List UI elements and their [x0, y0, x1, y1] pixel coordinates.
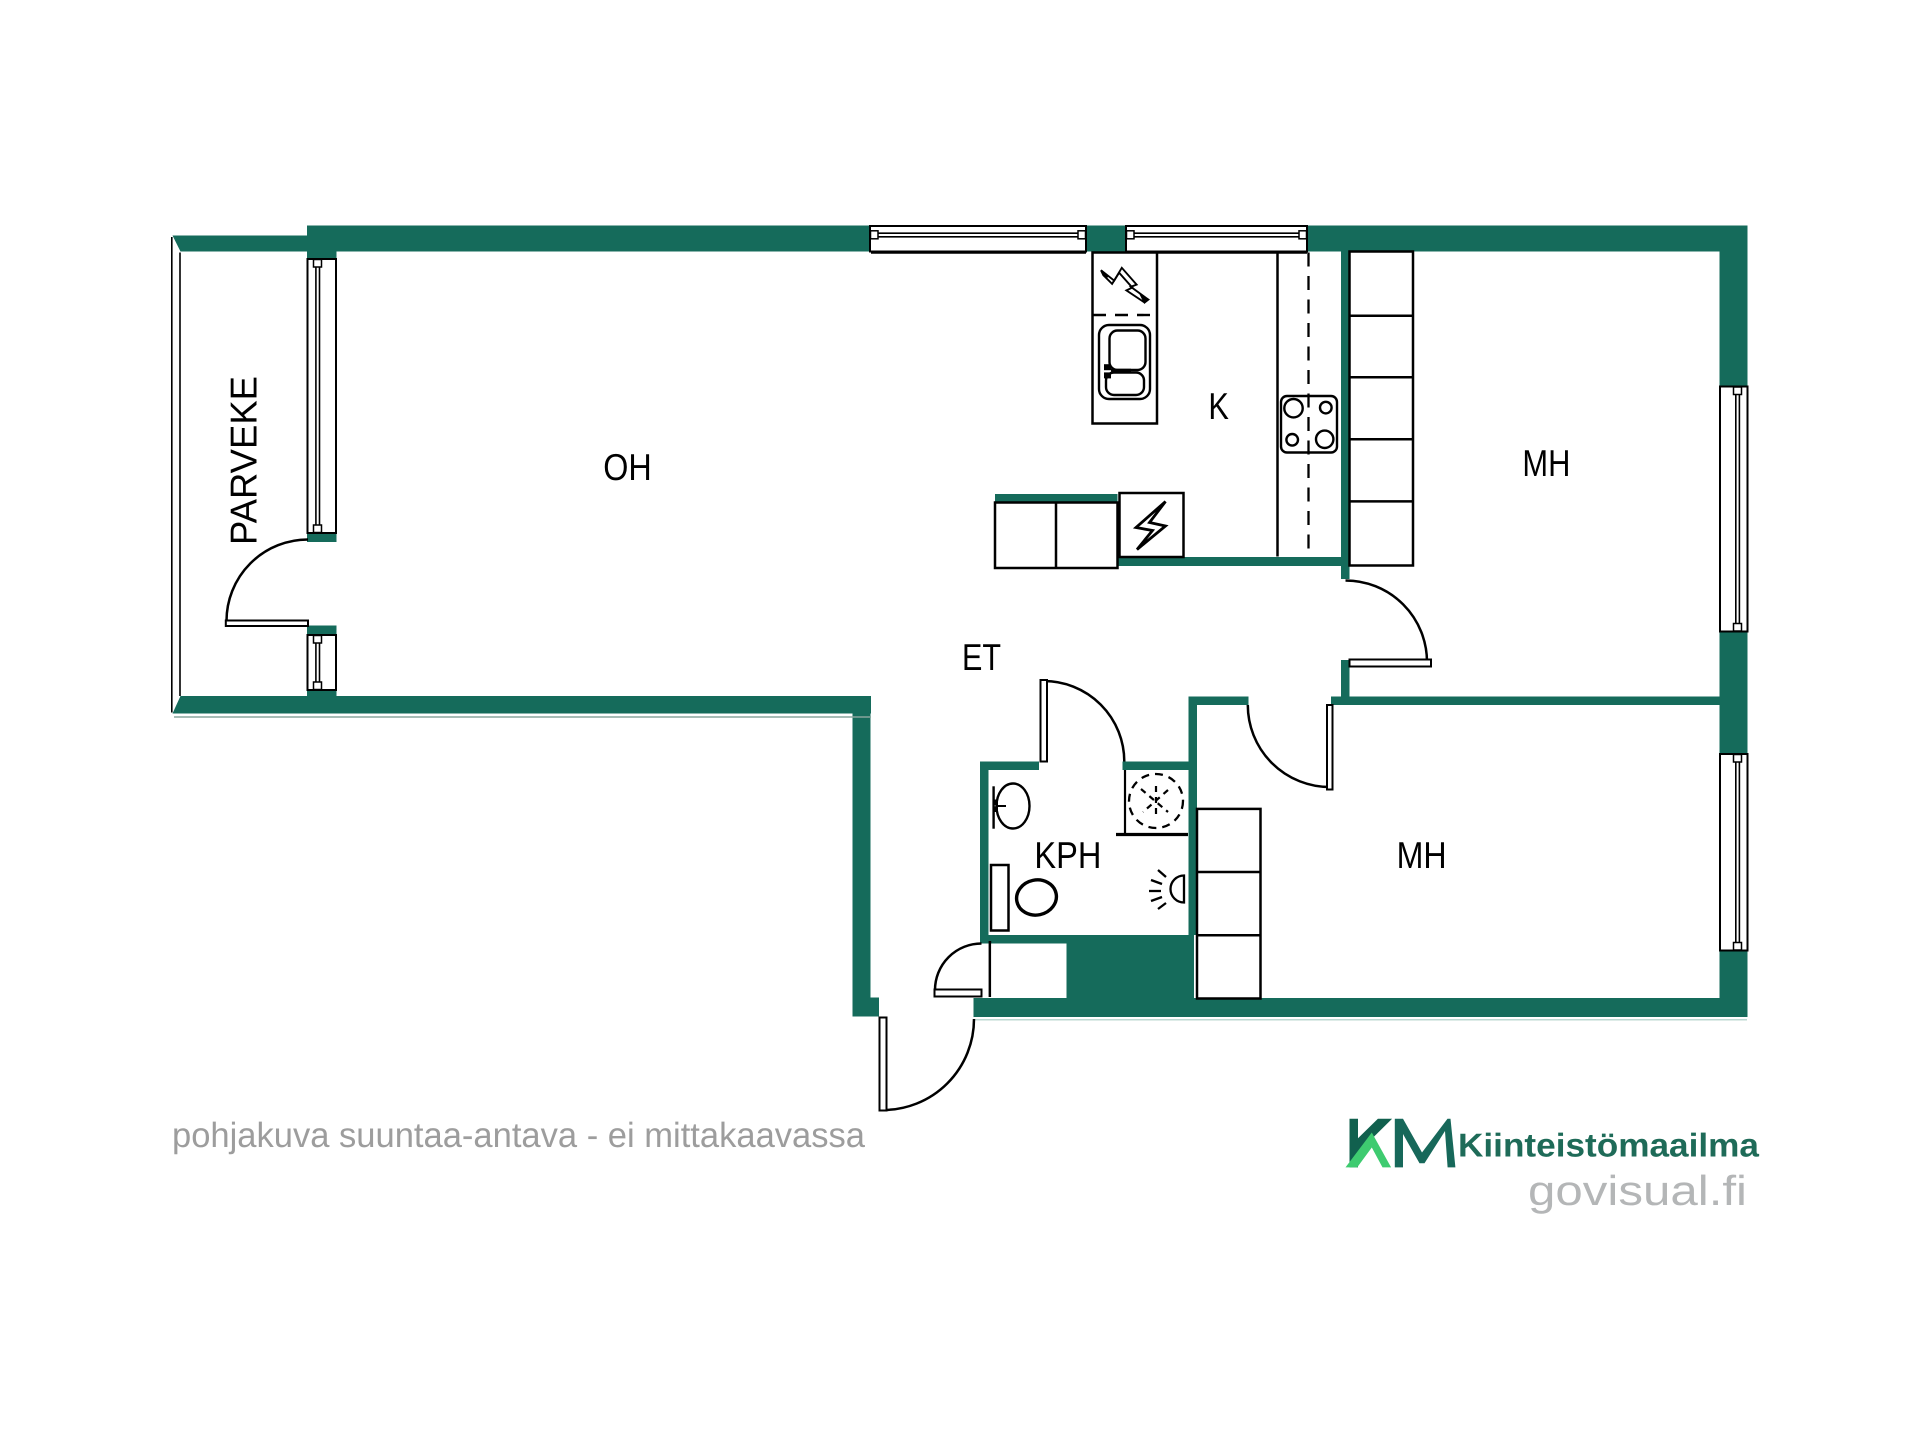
- svg-text:pohjakuva suuntaa-antava - ei: pohjakuva suuntaa-antava - ei mittakaava…: [172, 1116, 866, 1155]
- svg-text:ET: ET: [962, 636, 1001, 678]
- svg-text:K: K: [1208, 385, 1229, 427]
- svg-text:MH: MH: [1397, 834, 1447, 876]
- svg-text:OH: OH: [603, 446, 652, 488]
- svg-text:Kiinteistömaailma: Kiinteistömaailma: [1458, 1127, 1760, 1164]
- svg-text:MH: MH: [1522, 442, 1570, 484]
- svg-text:govisual.fi: govisual.fi: [1528, 1167, 1747, 1214]
- svg-text:KPH: KPH: [1034, 834, 1101, 876]
- svg-text:PARVEKE: PARVEKE: [223, 376, 265, 545]
